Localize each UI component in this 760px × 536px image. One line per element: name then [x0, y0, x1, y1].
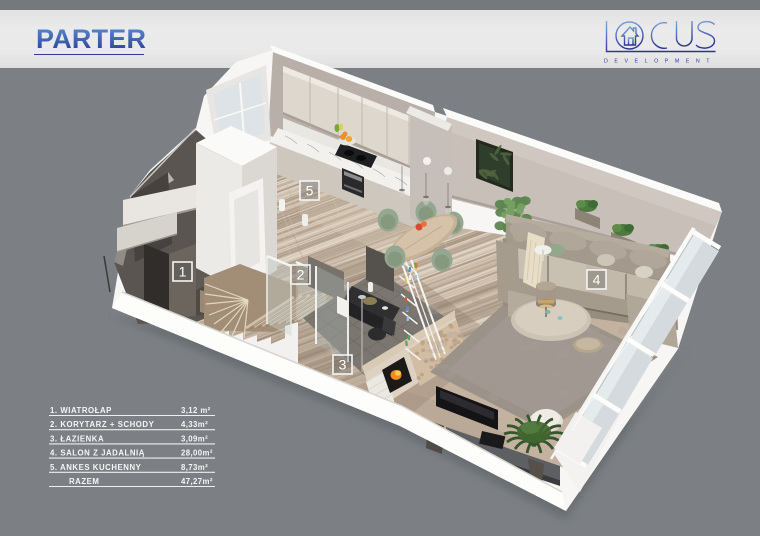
svg-text:5: 5: [306, 183, 314, 199]
svg-text:3. ŁAZIENKA: 3. ŁAZIENKA: [50, 434, 104, 443]
svg-text:4. SALON Z JADALNIĄ: 4. SALON Z JADALNIĄ: [50, 449, 145, 458]
svg-text:5. ANKES KUCHENNY: 5. ANKES KUCHENNY: [50, 463, 142, 472]
svg-text:28,00m²: 28,00m²: [181, 449, 213, 458]
svg-text:3,12 m²: 3,12 m²: [181, 406, 211, 415]
svg-text:8,73m²: 8,73m²: [181, 463, 208, 472]
svg-text:3: 3: [339, 357, 347, 373]
svg-text:1: 1: [179, 264, 187, 280]
svg-text:1. WIATROŁAP: 1. WIATROŁAP: [50, 406, 112, 415]
svg-text:4: 4: [593, 272, 601, 288]
svg-text:2: 2: [297, 267, 305, 283]
svg-text:3,09m²: 3,09m²: [181, 434, 208, 443]
svg-text:2. KORYTARZ + SCHODY: 2. KORYTARZ + SCHODY: [50, 420, 155, 429]
svg-text:4,33m²: 4,33m²: [181, 420, 208, 429]
svg-text:RAZEM: RAZEM: [69, 477, 99, 486]
svg-text:47,27m²: 47,27m²: [181, 477, 213, 486]
